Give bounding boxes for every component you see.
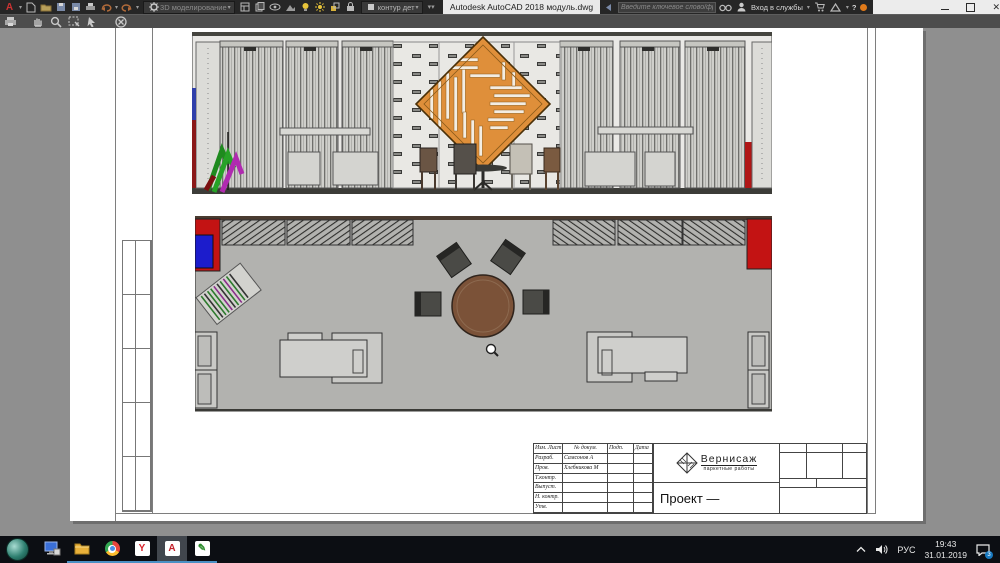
project-title: Проект — bbox=[654, 483, 779, 513]
autocad-logo-icon[interactable]: A bbox=[3, 1, 16, 13]
title-block-table: Изм. Лист № докум. Подп. Дата Разраб. Са… bbox=[534, 444, 654, 513]
round-table bbox=[452, 275, 514, 337]
taskbar-image-editor[interactable]: ✎ bbox=[187, 536, 217, 563]
folder-icon bbox=[74, 542, 90, 555]
layer-on-lightbulb-icon[interactable] bbox=[299, 1, 312, 13]
maximize-button[interactable] bbox=[966, 3, 975, 12]
frame-left-line bbox=[152, 28, 153, 513]
open-file-icon[interactable] bbox=[39, 1, 52, 13]
undo-icon[interactable] bbox=[99, 1, 112, 13]
minimize-button[interactable] bbox=[941, 9, 949, 10]
redo-icon[interactable] bbox=[120, 1, 133, 13]
windows-taskbar: Y A ✎ РУС 19:43 31.01.2019 3 bbox=[0, 536, 1000, 563]
taskbar-yandex-browser[interactable]: Y bbox=[127, 536, 157, 563]
pan-hand-icon[interactable] bbox=[31, 16, 44, 28]
zoom-magnifier-icon[interactable] bbox=[49, 16, 62, 28]
layer-name-label: контур дет bbox=[378, 3, 415, 12]
autocad-window: A ▾ ▾ ▾ 3D моделирование ▾ bbox=[0, 0, 1000, 563]
sheet-set-icon[interactable] bbox=[254, 1, 267, 13]
window-select-icon[interactable] bbox=[67, 16, 80, 28]
undo-dropdown-icon[interactable]: ▾ bbox=[115, 4, 118, 11]
workspace-label: 3D моделирование bbox=[160, 3, 227, 12]
save-icon[interactable] bbox=[54, 1, 67, 13]
logo-dropdown-icon[interactable]: ▾ bbox=[19, 4, 22, 11]
a360-dropdown-icon[interactable]: ▾ bbox=[846, 4, 849, 11]
layer-lock-icon[interactable] bbox=[344, 1, 357, 13]
window-title: Autodesk AutoCAD 2018 модуль.dwg bbox=[450, 2, 593, 12]
save-as-icon[interactable] bbox=[69, 1, 82, 13]
pointer-icon[interactable] bbox=[85, 16, 98, 28]
elevation-view bbox=[192, 32, 772, 194]
frame-stamp-column bbox=[122, 240, 152, 512]
company-logo: Вернисаж паркетные работы bbox=[654, 444, 779, 483]
drawing-canvas[interactable]: Изм. Лист № докум. Подп. Дата Разраб. Са… bbox=[0, 28, 1000, 536]
infocenter-arrow-icon[interactable] bbox=[602, 1, 615, 13]
parquet-logo-icon bbox=[676, 452, 698, 474]
title-block-right-grid bbox=[780, 444, 866, 513]
computer-icon bbox=[44, 541, 61, 556]
close-preview-icon[interactable] bbox=[114, 16, 127, 28]
yandex-icon: Y bbox=[135, 541, 150, 556]
app-store-cart-icon[interactable] bbox=[813, 1, 826, 13]
toolbar-collapse-icon[interactable]: ▾▾ bbox=[428, 3, 435, 11]
a360-icon[interactable] bbox=[829, 1, 842, 13]
title-bar: A ▾ ▾ ▾ 3D моделирование ▾ bbox=[0, 0, 1000, 14]
taskbar-this-pc[interactable] bbox=[37, 536, 67, 563]
gear-icon bbox=[147, 1, 160, 13]
help-button[interactable]: ? bbox=[852, 3, 857, 12]
chrome-icon bbox=[105, 541, 120, 556]
sheet-edge-line bbox=[115, 28, 116, 521]
autocad-app-icon: A bbox=[165, 541, 180, 556]
clock[interactable]: 19:43 31.01.2019 bbox=[924, 539, 967, 560]
system-tray: РУС 19:43 31.01.2019 3 bbox=[856, 539, 1000, 560]
render-icon[interactable] bbox=[284, 1, 297, 13]
plot-icon[interactable] bbox=[84, 1, 97, 13]
redo-dropdown-icon[interactable]: ▾ bbox=[136, 4, 139, 11]
company-subtitle: паркетные работы bbox=[704, 466, 755, 472]
notification-dot-icon[interactable] bbox=[860, 4, 867, 11]
start-button[interactable] bbox=[6, 538, 29, 561]
signin-services-button[interactable]: Вход в службы bbox=[751, 3, 803, 12]
layer-dropdown[interactable]: контур дет ▾ bbox=[361, 1, 423, 14]
tray-expand-icon[interactable] bbox=[856, 546, 866, 553]
title-block: Изм. Лист № докум. Подп. Дата Разраб. Са… bbox=[533, 443, 867, 514]
volume-icon[interactable] bbox=[875, 544, 888, 555]
search-input[interactable] bbox=[618, 2, 716, 13]
layer-swatch-icon bbox=[365, 1, 378, 13]
taskbar-autocad[interactable]: A bbox=[157, 536, 187, 563]
workspace-dropdown-icon: ▾ bbox=[228, 4, 231, 11]
company-name: Вернисаж bbox=[701, 454, 757, 466]
desk-left bbox=[280, 333, 382, 383]
preview-plot-icon[interactable] bbox=[4, 16, 17, 28]
signin-dropdown-icon[interactable]: ▾ bbox=[807, 4, 810, 11]
binoculars-search-icon[interactable] bbox=[719, 1, 732, 13]
workspace-switcher[interactable]: 3D моделирование ▾ bbox=[143, 1, 235, 14]
new-file-icon[interactable] bbox=[24, 1, 37, 13]
layer-sun-icon[interactable] bbox=[314, 1, 327, 13]
layout-icon[interactable] bbox=[239, 1, 252, 13]
action-center-button[interactable]: 3 bbox=[976, 544, 990, 556]
taskbar-file-explorer[interactable] bbox=[67, 536, 97, 563]
user-icon[interactable] bbox=[735, 1, 748, 13]
eye-icon[interactable] bbox=[269, 1, 282, 13]
view-toolbar bbox=[0, 14, 1000, 28]
layer-freeze-icon[interactable] bbox=[329, 1, 342, 13]
editor-icon: ✎ bbox=[195, 541, 210, 556]
plan-view bbox=[195, 216, 772, 412]
taskbar-chrome[interactable] bbox=[97, 536, 127, 563]
frame-right-inner-line bbox=[867, 28, 868, 513]
close-button[interactable]: ✕ bbox=[992, 0, 1000, 14]
notification-count-badge: 3 bbox=[985, 551, 993, 559]
frame-right-line bbox=[875, 28, 876, 513]
language-indicator[interactable]: РУС bbox=[897, 545, 915, 555]
layer-dropdown-icon: ▾ bbox=[416, 4, 419, 11]
paper-sheet: Изм. Лист № докум. Подп. Дата Разраб. Са… bbox=[70, 28, 923, 521]
